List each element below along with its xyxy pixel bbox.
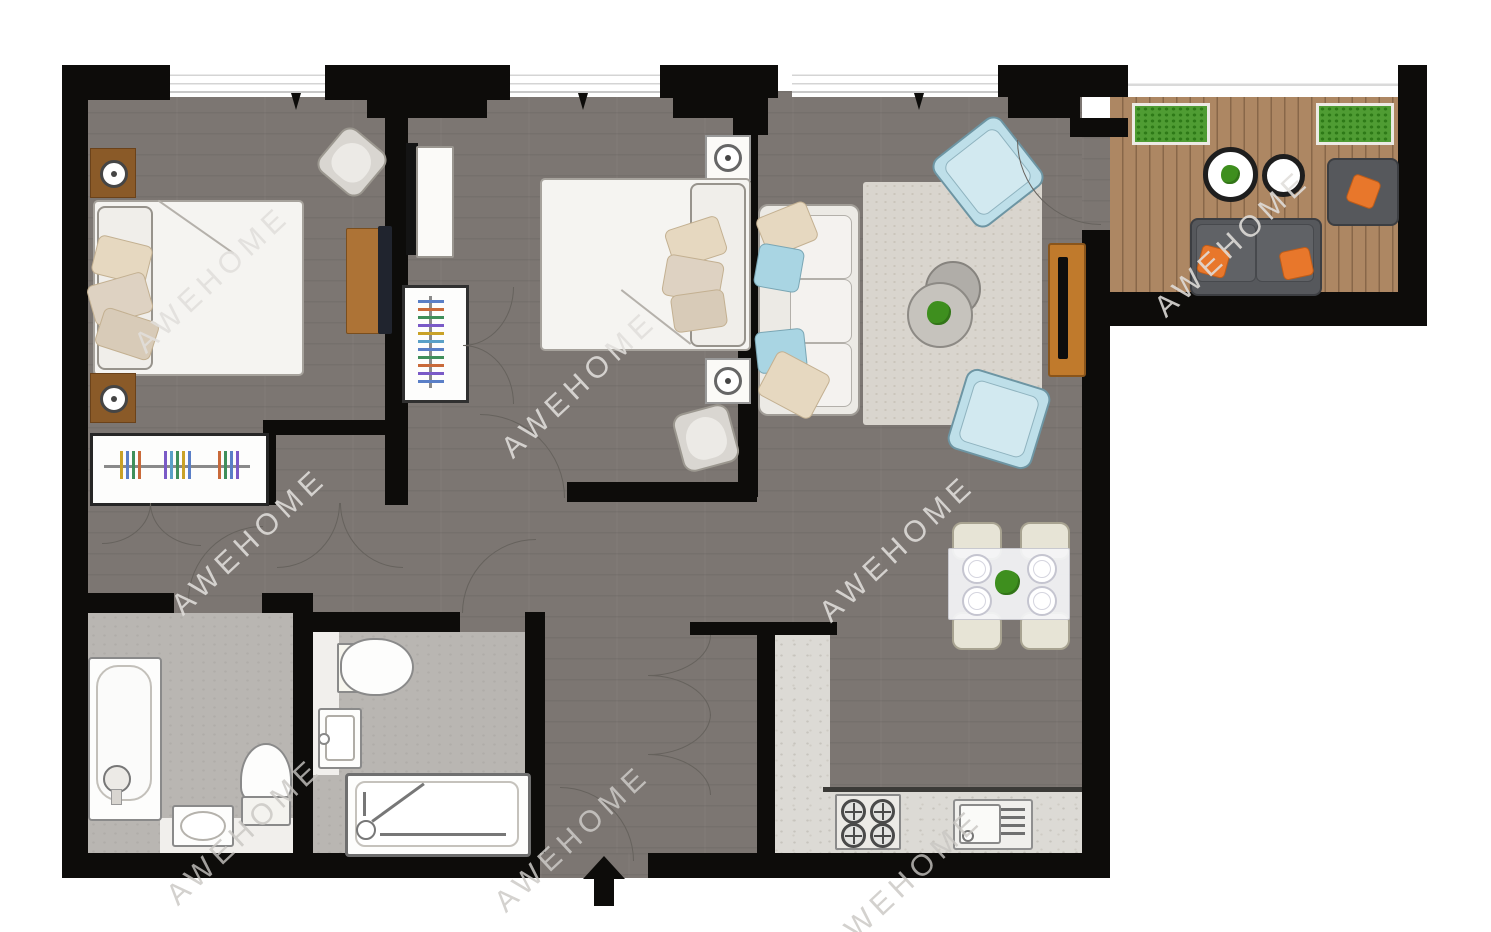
wall-left [62, 65, 88, 878]
bathroom1-toilet-tank [241, 796, 291, 826]
hob-burner-1 [841, 799, 866, 824]
balcony-glazing-band [1128, 65, 1398, 97]
hanger-tick [182, 451, 185, 479]
hanger-tick [170, 451, 173, 479]
hanger-tick [418, 316, 444, 319]
hanger-tick [418, 348, 444, 351]
hanger-tick [418, 300, 444, 303]
wall-kitchen-west [757, 625, 775, 853]
plate-top-left [962, 554, 992, 584]
floorplan-canvas: AWEHOME AWEHOME AWEHOME AWEHOME AWEHOME … [0, 0, 1491, 932]
wall-bedroom2-bottom [567, 482, 757, 502]
bedroom1-armchair-seat [325, 135, 379, 189]
kitchen-faucet-icon [962, 830, 974, 842]
balcony-table-small [1262, 154, 1305, 197]
window-arrow-bedroom2 [578, 93, 588, 110]
hob-burner-2 [870, 799, 895, 824]
wall-bathroom2-top [313, 612, 460, 632]
wall-bottom-east [648, 853, 1110, 878]
living-armchair-bottom-seat [957, 378, 1041, 459]
bedroom1-wardrobe [90, 433, 269, 506]
kitchen-counter-edge [823, 787, 1082, 792]
shower-riser-line [363, 792, 366, 816]
hanger-tick [164, 451, 167, 479]
hanger-tick [418, 364, 444, 367]
bathroom2-toilet-bowl [340, 638, 414, 696]
hanger-tick [418, 340, 444, 343]
plate-bottom-right [1027, 586, 1057, 616]
window-arrow-bedroom1 [291, 93, 301, 110]
plate-top-right [1027, 554, 1057, 584]
wall-bathroom1-top-right [262, 593, 293, 613]
wall-balcony-bottom [1110, 292, 1427, 326]
sofa-pillow-blue-top [753, 242, 806, 293]
bathroom2-faucet-icon [318, 733, 330, 745]
plate-bottom-left [962, 586, 992, 616]
wall-top-blockC-step2 [1070, 118, 1128, 137]
hanger-tick [418, 372, 444, 375]
bedroom2-console [416, 146, 454, 258]
window-arrow-living [914, 93, 924, 110]
shower-drain-icon [356, 820, 376, 840]
hanger-tick [418, 332, 444, 335]
window-bedroom1 [170, 65, 325, 97]
hanger-tick [126, 451, 129, 479]
wall-top-blockB [660, 65, 778, 98]
bedroom2-pillow-3 [670, 288, 729, 333]
entry-arrow-head-icon [583, 856, 625, 879]
tv-icon [1058, 257, 1068, 359]
hanger-tick [188, 451, 191, 479]
hanger-tick [418, 324, 444, 327]
shower-bottom-line [380, 833, 506, 836]
bedroom1-lamp-top-icon [100, 160, 128, 188]
wall-right-main [1082, 230, 1110, 878]
hanger-tick [138, 451, 141, 479]
hanger-tick [230, 451, 233, 479]
hanger-tick [132, 451, 135, 479]
balcony-planter-right [1316, 103, 1394, 145]
hanger-tick [418, 356, 444, 359]
wall-bathroom1-top-left [88, 593, 174, 613]
balcony-planter-left [1132, 103, 1210, 145]
hanger-tick [176, 451, 179, 479]
wall-bedroom1-bottom [276, 420, 402, 435]
hanger-tick [120, 451, 123, 479]
entry-arrow-shaft-icon [594, 878, 614, 906]
bathroom1-basin-bowl [180, 811, 226, 841]
hanger-tick [218, 451, 221, 479]
bedroom2-lamp-top-icon [714, 144, 742, 172]
hanger-tick [236, 451, 239, 479]
hanger-tick [224, 451, 227, 479]
wall-top-blockA [325, 65, 510, 100]
hob-burner-3 [841, 823, 866, 848]
kitchen-drainer-lines [1001, 808, 1025, 840]
wall-top-blockC-step1 [1008, 97, 1080, 118]
bedroom1-dresser-panel [378, 226, 392, 334]
wall-balcony-right [1398, 65, 1427, 326]
bedroom2-armchair-seat [681, 413, 731, 464]
bedroom1-lamp-bottom-icon [100, 385, 128, 413]
hanger-tick [418, 380, 444, 383]
wall-bathroom1-right [293, 593, 313, 853]
hanger-tick [418, 308, 444, 311]
wall-top-blockB-step1 [673, 97, 768, 118]
hob-burner-4 [870, 823, 895, 848]
bathtub-faucet-stem [111, 789, 122, 805]
wall-top-blockC [998, 65, 1128, 97]
window-living [792, 65, 998, 97]
wall-kitchen-stub [690, 622, 837, 635]
bedroom2-lamp-bottom-icon [714, 367, 742, 395]
